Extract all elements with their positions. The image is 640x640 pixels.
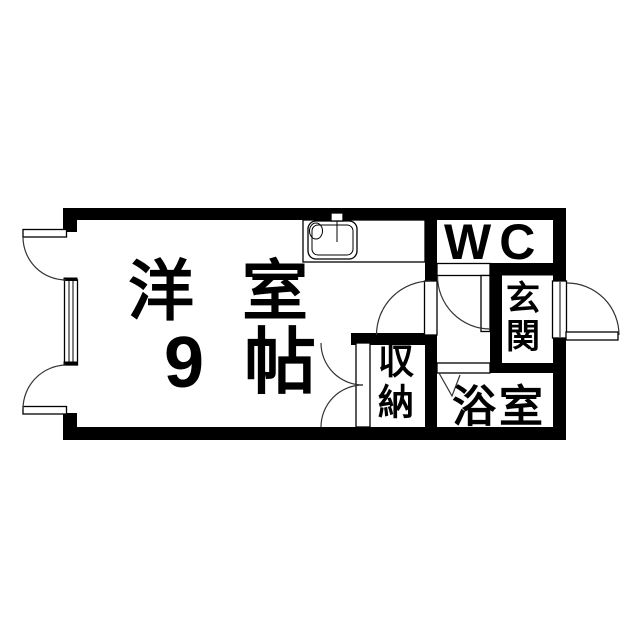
storage-label-char-0: 収 [378, 341, 414, 382]
wall-right-lower [553, 338, 566, 440]
entrance-label: 玄関 [506, 280, 540, 356]
wall-right-upper [553, 208, 566, 281]
entrance-label-char-1: 関 [506, 318, 540, 356]
wall-entrance-left [490, 275, 502, 363]
window-leaf-lower [23, 407, 67, 415]
casement-window-icon [23, 230, 78, 415]
window-swing-lower [23, 365, 66, 409]
wc-door [437, 264, 490, 332]
bath-label: 浴室 [452, 382, 546, 432]
wc-door-leaf [481, 276, 490, 332]
entrance-door [553, 281, 620, 340]
bath-door-opening [437, 363, 490, 373]
window-frame [65, 280, 78, 365]
hinged-door-icon [377, 281, 438, 335]
window-swing-upper [23, 237, 66, 280]
floor-plan: 洋室 9帖 WC 浴室 玄関 収納 [0, 0, 640, 640]
main-room-name: 洋室 [128, 254, 356, 328]
window-leaf-upper [23, 230, 67, 238]
storage-label-char-1: 納 [378, 382, 414, 423]
entrance-door-swing [567, 283, 619, 335]
main-room-size: 9帖 [164, 323, 356, 403]
wc-label: WC [444, 214, 543, 270]
room-door-swing [377, 281, 431, 335]
room-door-leaf [425, 281, 438, 335]
wall-closet-right [425, 345, 437, 427]
faucet-base [331, 213, 343, 221]
entrance-door-leaf [566, 332, 618, 340]
wall-left-lower [63, 413, 77, 440]
floor-plan-page: 洋室 9帖 WC 浴室 玄関 収納 [0, 0, 640, 640]
storage-label: 収納 [378, 341, 414, 423]
entrance-label-char-0: 玄 [506, 280, 540, 318]
wall-left-upper [63, 208, 77, 232]
